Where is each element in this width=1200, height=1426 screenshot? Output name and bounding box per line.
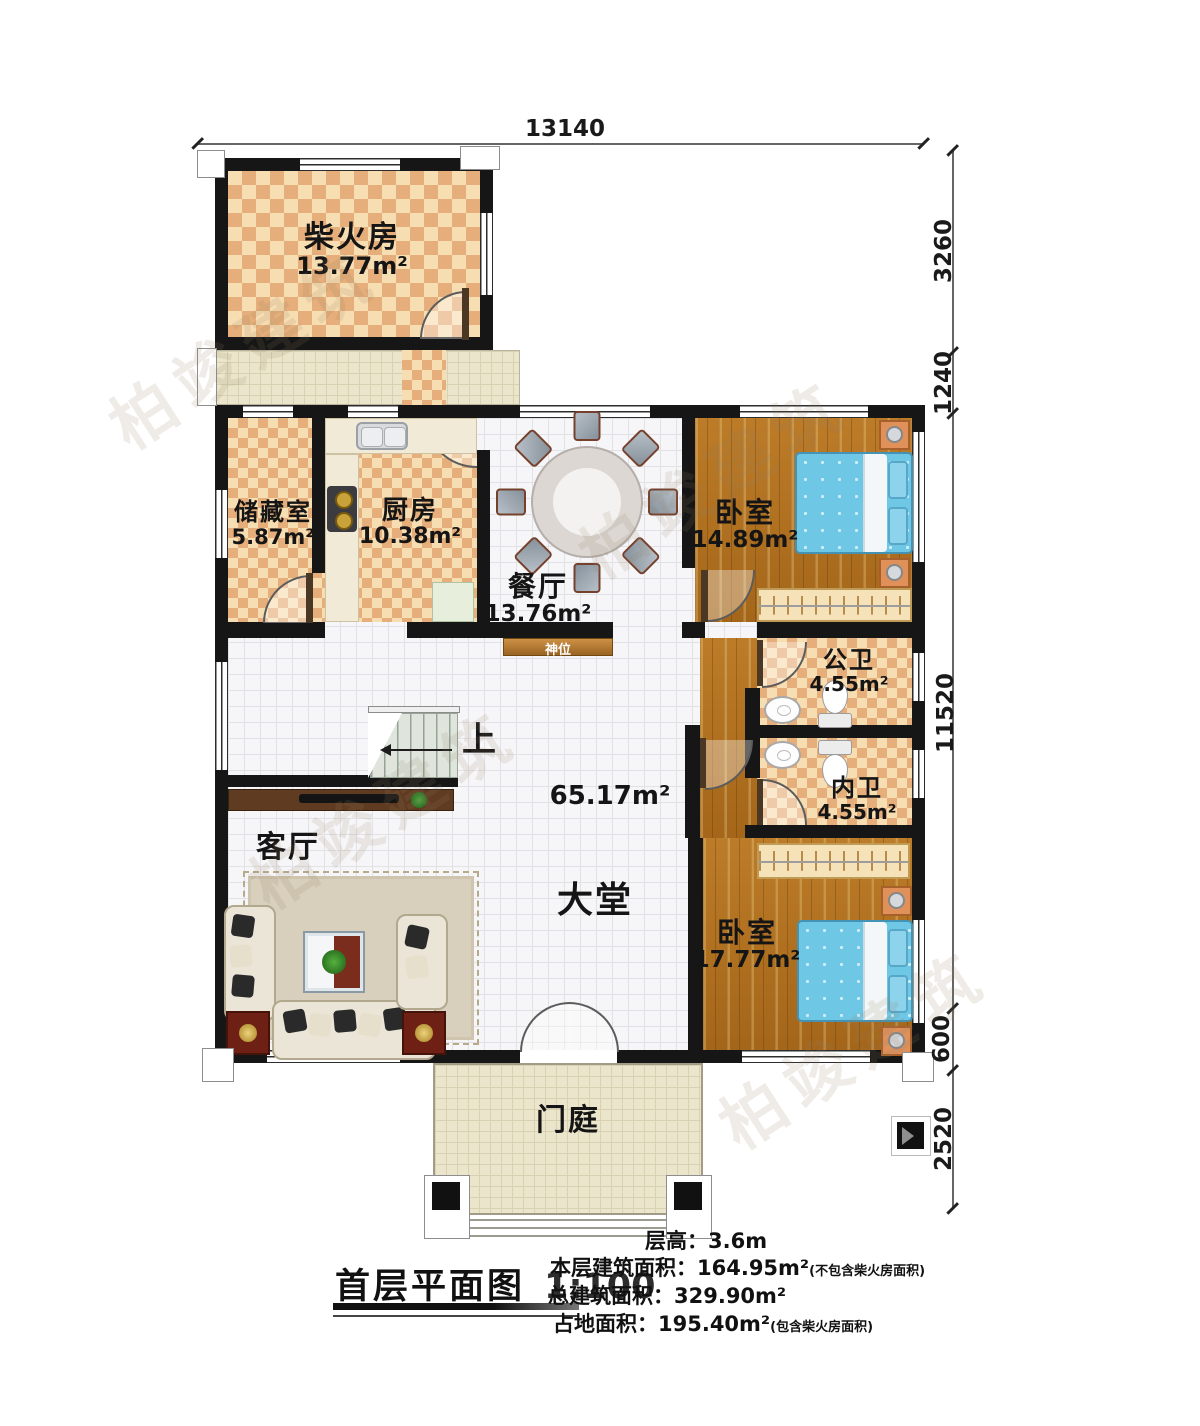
room-name: 卧室: [690, 498, 800, 528]
dim-value-right: 11520: [933, 673, 959, 753]
room-name: 餐厅: [478, 572, 598, 602]
window: [348, 405, 398, 418]
wardrobe: [757, 588, 912, 622]
room-label-storage: 储藏室 5.87m²: [218, 500, 328, 549]
room-label-porch: 门庭: [498, 1105, 638, 1137]
room-name: 大堂: [530, 882, 660, 921]
stat-land-area: 占地面积：195.40m²(包含柴火房面积): [553, 1308, 873, 1338]
porch-step: [470, 1219, 666, 1221]
kitchen-sink: [356, 422, 408, 450]
window: [740, 405, 868, 418]
room-area: 65.17m²: [545, 782, 675, 810]
nightstand: [881, 886, 912, 916]
porch-column: [432, 1182, 460, 1210]
room-label-kitchen: 厨房 10.38m²: [355, 497, 465, 549]
stat-floor-area: 本层建筑面积：164.95m²(不包含柴火房面积): [550, 1252, 925, 1282]
room-name: 储藏室: [218, 500, 328, 526]
room-name: 柴火房: [252, 222, 452, 254]
kitchen-stove: [327, 486, 357, 532]
room-area: 17.77m²: [692, 948, 802, 973]
shrine-label: 神位: [545, 643, 571, 658]
stat-label: 本层建筑面积：: [550, 1256, 697, 1280]
sofa-cushion: [405, 955, 430, 980]
door-leaf: [701, 570, 708, 622]
porch-floor: [433, 1063, 703, 1215]
corridor-floor: [215, 350, 520, 405]
door-leaf: [462, 288, 469, 340]
porch-column: [674, 1182, 702, 1210]
sofa-cushion: [231, 914, 256, 939]
room-area: 13.77m²: [252, 254, 452, 280]
wall: [312, 418, 325, 573]
dining-chair: [574, 411, 601, 441]
dining-table-top: [553, 468, 621, 536]
room-label-bath-public: 公卫 4.55m²: [790, 648, 908, 696]
stat-note: (包含柴火房面积): [770, 1320, 873, 1335]
logo-arrow-icon: [891, 1116, 931, 1156]
kitchen-counter-left: [325, 454, 359, 622]
stat-note: (不包含柴火房面积): [809, 1264, 925, 1279]
wall: [682, 622, 705, 638]
kitchen-fridge: [432, 582, 474, 622]
wall: [215, 622, 325, 638]
wall: [745, 688, 760, 728]
room-label-hall: 大堂: [530, 882, 660, 921]
sofa-cushion: [404, 924, 430, 950]
stat-label: 占地面积：: [553, 1312, 658, 1336]
door-leaf: [757, 779, 763, 825]
bed-sheet: [863, 454, 887, 552]
sofa-cushion: [333, 1009, 357, 1033]
bed: [797, 920, 913, 1022]
window: [243, 405, 293, 418]
room-name: 卧室: [692, 918, 802, 948]
dining-chair: [648, 489, 678, 516]
coffee-table: [303, 931, 365, 993]
title-underline-thick: [333, 1303, 579, 1310]
wall: [685, 725, 700, 838]
room-name: 厨房: [355, 497, 465, 525]
shrine-niche: 神位: [503, 638, 613, 656]
room-area: 4.55m²: [790, 674, 908, 696]
pilaster: [197, 348, 217, 406]
window: [912, 432, 925, 562]
dim-value-right: 600: [929, 1015, 955, 1063]
dining-chair: [496, 489, 526, 516]
room-name: 公卫: [790, 648, 908, 674]
nightstand: [879, 420, 910, 450]
room-label-living: 客厅: [228, 832, 348, 864]
corner-table: [402, 1011, 446, 1055]
stat-label: 层高：: [645, 1229, 708, 1253]
dim-value-right: 2520: [931, 1107, 957, 1171]
stairs-up-label: 上: [458, 722, 502, 759]
plan-title: 首层平面图: [335, 1267, 525, 1307]
room-area: 10.38m²: [355, 525, 465, 549]
porch-step: [470, 1235, 666, 1237]
room-label-bath-private: 内卫 4.55m²: [798, 776, 916, 824]
pilaster: [460, 146, 500, 170]
wall: [745, 825, 925, 838]
room-label-bedroom-top: 卧室 14.89m²: [690, 498, 800, 553]
window: [912, 920, 925, 1023]
porch-step: [470, 1227, 666, 1229]
stat-floor-height: 层高：3.6m: [645, 1225, 767, 1255]
title-underline-thin: [333, 1315, 579, 1317]
sofa-cushion: [308, 1013, 333, 1038]
room-label-dining: 餐厅 13.76m²: [478, 572, 598, 627]
dim-value-right: 3260: [931, 219, 957, 283]
room-area: 5.87m²: [218, 526, 328, 549]
room-area: 13.76m²: [478, 602, 598, 627]
bed-pillow: [888, 507, 908, 545]
sofa-cushion: [229, 944, 253, 968]
stairs-up-text: 上: [458, 722, 502, 759]
door-leaf: [757, 640, 763, 686]
room-label-firewood: 柴火房 13.77m²: [252, 222, 452, 280]
window: [480, 213, 493, 295]
wall: [757, 622, 925, 638]
stat-value: 195.40m²: [658, 1312, 770, 1336]
window: [300, 158, 400, 171]
room-name: 内卫: [798, 776, 916, 802]
dim-value-top: 13140: [525, 116, 605, 142]
door-leaf: [306, 573, 313, 623]
room-name: 客厅: [228, 832, 348, 864]
stat-value: 3.6m: [708, 1229, 767, 1253]
wardrobe: [757, 843, 910, 879]
stat-label: 总建筑面积：: [548, 1284, 674, 1308]
sofa-cushion: [357, 1012, 382, 1037]
window: [742, 1050, 870, 1063]
pilaster: [197, 150, 225, 178]
pilaster: [202, 1048, 234, 1082]
bed-pillow: [888, 461, 908, 499]
staircase: [368, 706, 460, 780]
dim-value-right: 1240: [931, 351, 957, 415]
bed-sheet: [863, 922, 887, 1020]
bed-pillow: [888, 929, 908, 967]
room-label-bedroom-bottom: 卧室 17.77m²: [692, 918, 802, 973]
room-name: 门庭: [498, 1105, 638, 1137]
stat-value: 329.90m²: [674, 1284, 786, 1308]
nightstand: [879, 558, 910, 588]
room-area: 4.55m²: [798, 802, 916, 824]
hall-area-label: 65.17m²: [545, 782, 675, 810]
corridor-door-patch: [402, 350, 446, 405]
floor-plan-canvas: 柏竣建筑 柏竣建筑 柏竣建筑 柏竣建筑 柴火房 13.77m²: [0, 0, 1200, 1426]
tv-cabinet: [228, 789, 454, 811]
dim-line-top: [197, 143, 923, 145]
stat-total-area: 总建筑面积：329.90m²: [548, 1280, 786, 1310]
room-area: 14.89m²: [690, 528, 800, 553]
bed-pillow: [888, 975, 908, 1013]
sofa-cushion: [282, 1008, 307, 1033]
window: [215, 662, 228, 770]
stat-value: 164.95m²: [697, 1256, 809, 1280]
bed: [795, 452, 913, 554]
sofa-cushion: [231, 974, 255, 998]
window: [912, 653, 925, 701]
bathroom-sink: [764, 696, 801, 724]
door-leaf: [700, 738, 706, 788]
bathroom-sink: [764, 741, 801, 769]
